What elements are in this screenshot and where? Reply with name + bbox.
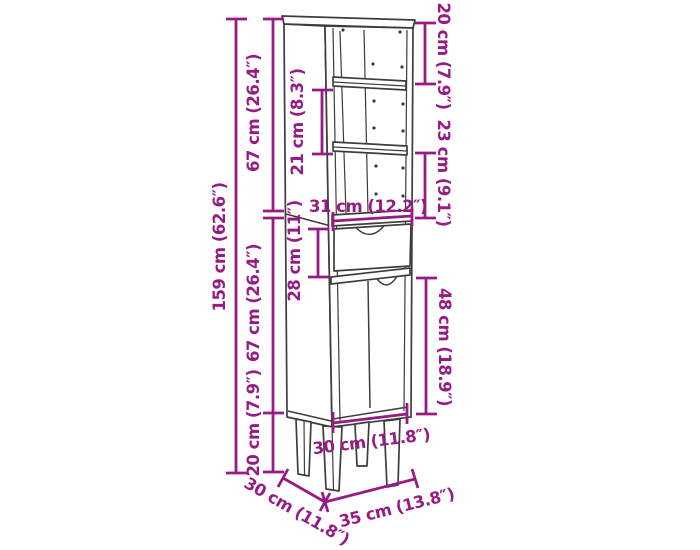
cabinet-dimension-diagram: 159 cm (62.6″) 67 cm (26.4″) 67 cm (26.4…	[0, 0, 700, 550]
dim-label-leg-height: 20 cm (7.9″)	[244, 369, 263, 476]
leg-back-left	[296, 419, 311, 476]
dim-label-lower-section: 67 cm (26.4″)	[244, 244, 263, 362]
dimension-diagram-page: 159 cm (62.6″) 67 cm (26.4″) 67 cm (26.4…	[0, 0, 700, 550]
dim-label-overall-width: 35 cm (13.8″)	[337, 484, 456, 531]
drawer-front	[334, 224, 411, 271]
dim-label-middle-compartment: 21 cm (8.3″)	[288, 68, 307, 175]
dim-label-drawer-height: 28 cm (11″)	[285, 200, 304, 301]
dim-label-door-height: 48 cm (18.9″)	[435, 288, 454, 406]
dimension-total-height: 159 cm (62.6″)	[210, 19, 247, 473]
dim-label-total-height: 159 cm (62.6″)	[210, 182, 229, 311]
dim-label-inner-width: 31 cm (12.2″)	[309, 197, 427, 216]
dimension-section-heights: 67 cm (26.4″) 67 cm (26.4″) 20 cm (7.9″)	[244, 19, 284, 477]
dimension-door-height: 48 cm (18.9″)	[416, 278, 454, 414]
dim-label-upper-section: 67 cm (26.4″)	[244, 54, 263, 172]
dimension-top-compartment: 20 cm (7.9″)	[415, 2, 453, 109]
dim-label-top-compartment: 20 cm (7.9″)	[434, 2, 453, 109]
dim-label-bottom-compartment: 23 cm (9.1″)	[434, 119, 453, 226]
